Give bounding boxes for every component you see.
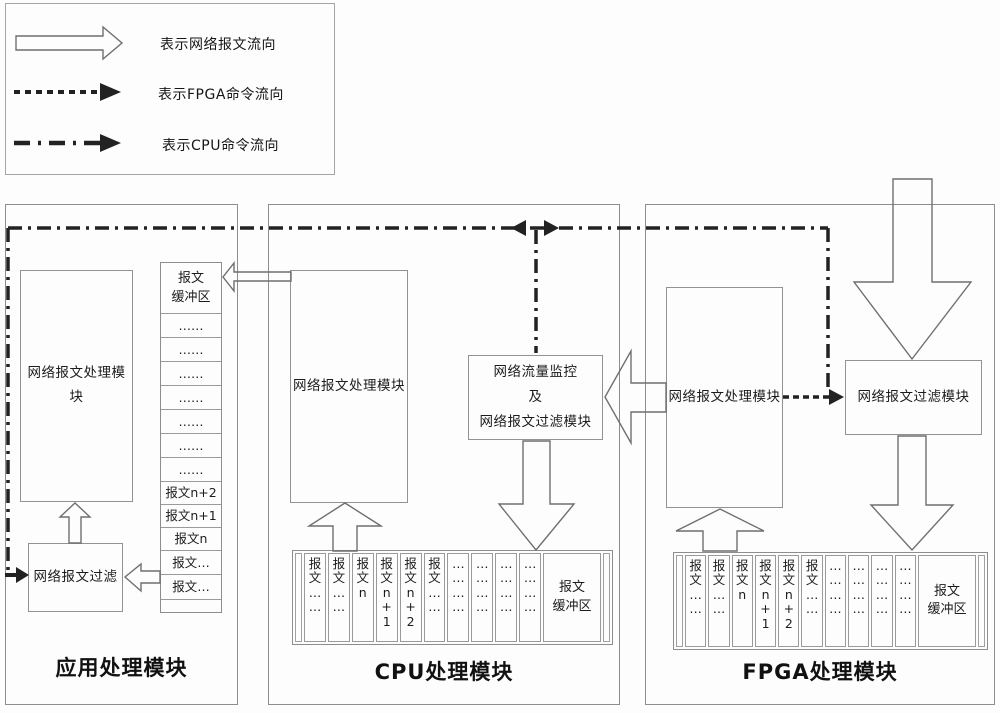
cpu-module-title: CPU处理模块 (268, 656, 620, 686)
app-module-title: 应用处理模块 (5, 652, 238, 682)
fpga-network-packet-processor-box: 网络报文处理模块 (666, 287, 783, 508)
fpga-buffer-label: 报文 缓冲区 (918, 555, 976, 647)
cpu-buffer-cell: … … … … (495, 553, 517, 642)
app-buffer-cell: …… (161, 386, 221, 410)
app-buffer-cell-empty (161, 600, 221, 612)
cpu-buffer-cell: … … … … (447, 553, 469, 642)
fpga-network-packet-filter-box: 网络报文过滤模块 (845, 360, 982, 435)
fpga-buffer-cell: 报 文 … … (708, 555, 729, 647)
app-packet-buffer: 报文 缓冲区 …… …… …… …… …… …… …… 报文n+2 报文n+1 … (160, 262, 222, 613)
fpga-buffer-cell-n1: 报 文 n + 1 (755, 555, 776, 647)
fpga-buffer-cell: … … … … (825, 555, 846, 647)
cpu-buffer-cell-n1: 报 文 n + 1 (376, 553, 398, 642)
fpga-buffer-cell: … … … … (871, 555, 892, 647)
fpga-packet-buffer: 报 文 … … 报 文 … … 报 文 n 报 文 n + 1 报 文 n + … (673, 552, 988, 650)
fpga-buffer-cell-n2: 报 文 n + 2 (778, 555, 799, 647)
app-buffer-cell: …… (161, 458, 221, 482)
fpga-buffer-cell: 报 文 … … (685, 555, 706, 647)
cpu-buffer-cell: … … … … (471, 553, 493, 642)
fpga-buffer-edge-strip (676, 555, 683, 647)
app-buffer-cell: 报文… (161, 551, 221, 575)
app-buffer-cell-n: 报文n (161, 528, 221, 551)
cpu-traffic-monitor-filter-box: 网络流量监控 及 网络报文过滤模块 (468, 355, 603, 440)
app-buffer-cell-n1: 报文n+1 (161, 505, 221, 528)
fpga-buffer-cell: 报 文 … … (801, 555, 822, 647)
cpu-buffer-label: 报文 缓冲区 (543, 553, 601, 642)
app-network-packet-filter-box: 网络报文过滤 (28, 543, 123, 612)
legend-label-cpu-command-flow: 表示CPU命令流向 (162, 135, 279, 155)
fpga-buffer-cell: … … … … (848, 555, 869, 647)
app-buffer-cell: …… (161, 362, 221, 386)
legend-label-fpga-command-flow: 表示FPGA命令流向 (158, 84, 284, 104)
cpu-buffer-edge-strip (295, 553, 302, 642)
fpga-buffer-edge-strip (978, 555, 985, 647)
app-buffer-cell: 报文… (161, 575, 221, 600)
cpu-packet-buffer: 报 文 … … 报 文 … … 报 文 n 报 文 n + 1 报 文 n + … (292, 550, 613, 645)
app-buffer-cell: …… (161, 314, 221, 338)
app-buffer-header: 报文 缓冲区 (161, 263, 221, 314)
app-buffer-cell-n2: 报文n+2 (161, 482, 221, 505)
cpu-buffer-cell-n2: 报 文 n + 2 (400, 553, 422, 642)
cpu-buffer-cell: 报 文 … … (328, 553, 350, 642)
cpu-network-packet-processor-box: 网络报文处理模块 (290, 270, 408, 503)
app-buffer-cell: …… (161, 434, 221, 458)
diagram-canvas: 表示网络报文流向 表示FPGA命令流向 表示CPU命令流向 网络报文处理模块 报… (0, 0, 1000, 713)
fpga-buffer-cell: … … … … (895, 555, 916, 647)
app-buffer-cell: …… (161, 338, 221, 362)
legend-label-network-packet-flow: 表示网络报文流向 (160, 34, 276, 54)
fpga-module-title: FPGA处理模块 (645, 656, 995, 686)
cpu-buffer-cell: 报 文 … … (304, 553, 326, 642)
cpu-buffer-cell: … … … … (519, 553, 541, 642)
cpu-buffer-cell-n: 报 文 n (352, 553, 374, 642)
app-network-packet-processor-box: 网络报文处理模块 (20, 270, 133, 502)
cpu-buffer-edge-strip (603, 553, 610, 642)
cpu-buffer-cell: 报 文 … … (424, 553, 446, 642)
app-buffer-cell: …… (161, 410, 221, 434)
fpga-buffer-cell-n: 报 文 n (732, 555, 753, 647)
